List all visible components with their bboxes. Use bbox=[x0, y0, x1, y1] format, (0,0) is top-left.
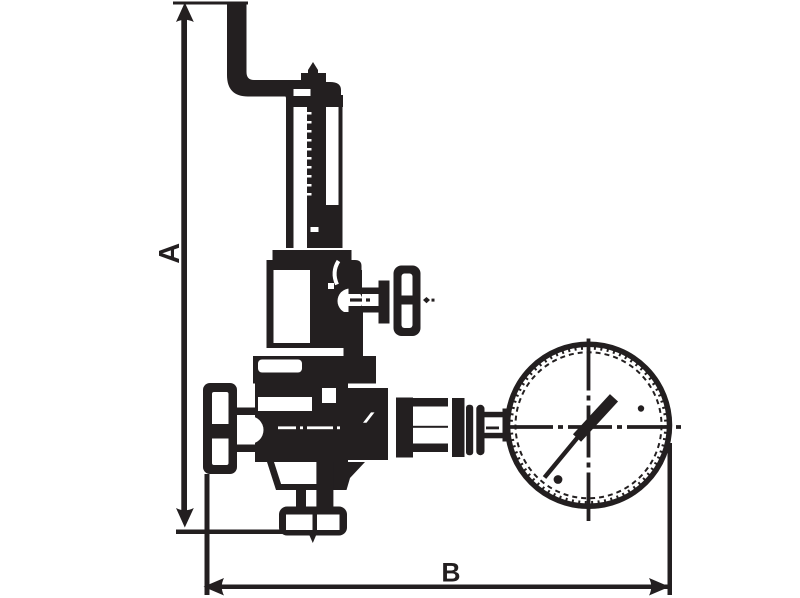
svg-text:A: A bbox=[154, 243, 186, 264]
svg-text:B: B bbox=[441, 557, 460, 587]
